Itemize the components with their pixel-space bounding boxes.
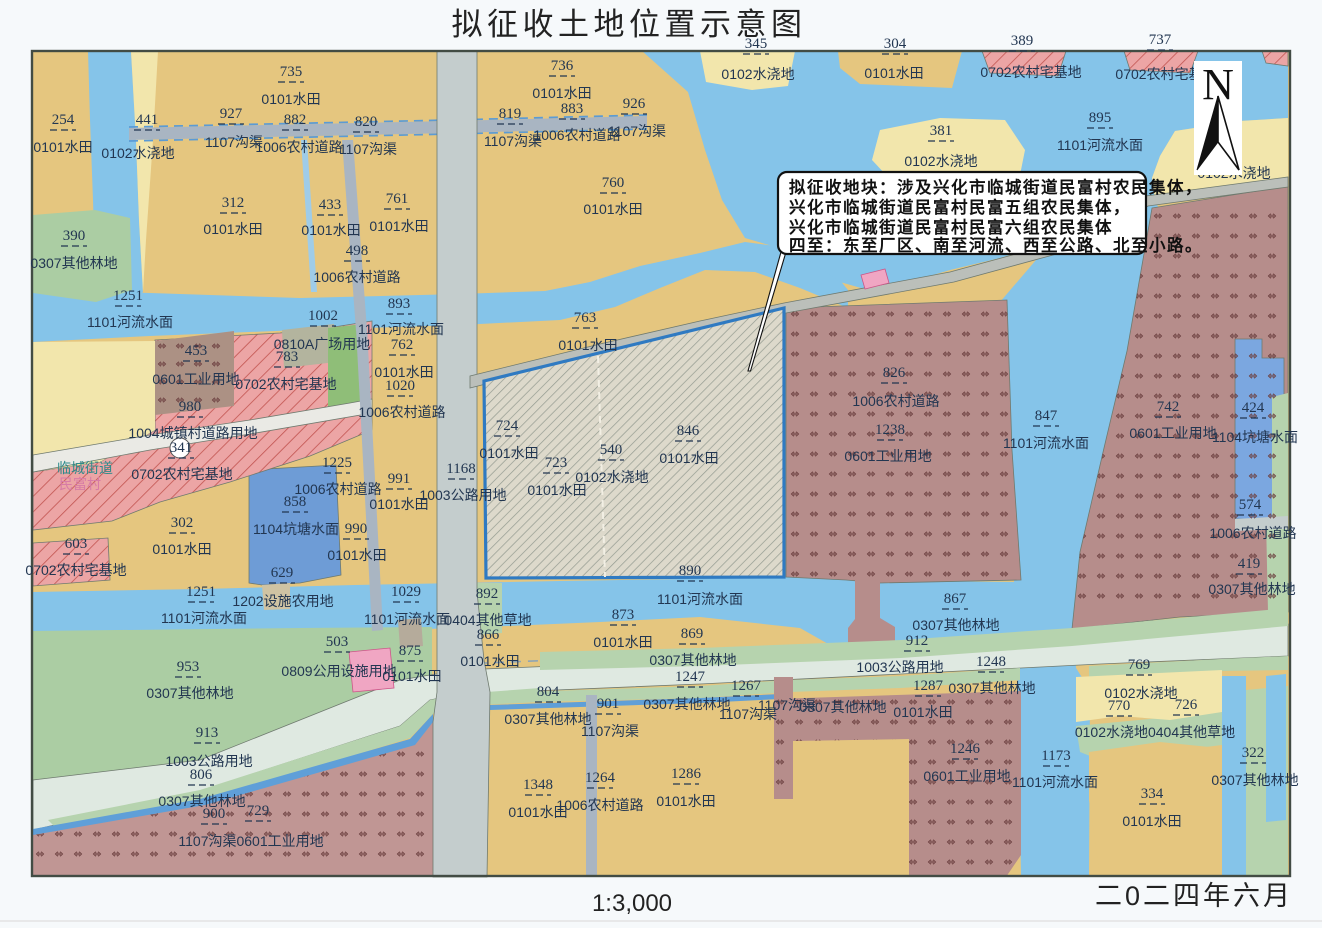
svg-text:0101水田: 0101水田 [261, 91, 320, 107]
svg-text:866: 866 [477, 627, 500, 643]
svg-text:0307其他林地: 0307其他林地 [649, 652, 736, 668]
svg-text:1101河流水面: 1101河流水面 [1003, 435, 1089, 451]
svg-text:1101河流水面: 1101河流水面 [1012, 774, 1098, 790]
svg-text:1107沟渠: 1107沟渠 [608, 123, 666, 139]
svg-text:0101水田: 0101水田 [460, 653, 519, 669]
svg-text:0102水浇地: 0102水浇地 [721, 66, 794, 82]
svg-text:1006农村道路: 1006农村道路 [358, 404, 445, 420]
svg-text:723: 723 [545, 455, 568, 471]
svg-text:0702农村宅基地: 0702农村宅基地 [235, 376, 336, 392]
svg-text:254: 254 [52, 112, 75, 128]
svg-text:1107沟渠: 1107沟渠 [339, 141, 397, 157]
svg-text:302: 302 [171, 515, 194, 531]
svg-text:820: 820 [355, 114, 378, 130]
svg-text:0307其他林地: 0307其他林地 [146, 685, 233, 701]
svg-text:0601工业用地: 0601工业用地 [1129, 425, 1216, 441]
svg-text:0809公用设施用地: 0809公用设施用地 [281, 663, 396, 679]
svg-text:1104坑塘水面: 1104坑塘水面 [253, 521, 339, 537]
svg-text:0307其他林地: 0307其他林地 [799, 699, 886, 715]
svg-text:873: 873 [612, 607, 635, 623]
svg-text:901: 901 [597, 696, 620, 712]
svg-text:895: 895 [1089, 110, 1112, 126]
svg-text:0101水田: 0101水田 [893, 704, 952, 720]
svg-text:0601工业用地: 0601工业用地 [844, 448, 931, 464]
svg-text:1104坑塘水面: 1104坑塘水面 [1212, 429, 1298, 445]
svg-text:1006农村道路: 1006农村道路 [294, 481, 381, 497]
svg-text:890: 890 [679, 563, 702, 579]
svg-text:0601工业用地: 0601工业用地 [923, 768, 1010, 784]
svg-text:民富村: 民富村 [59, 476, 101, 492]
svg-text:1348: 1348 [523, 777, 553, 793]
svg-text:兴化市临城街道民富村民富五组农民集体，: 兴化市临城街道民富村民富五组农民集体， [789, 197, 1131, 217]
svg-text:381: 381 [930, 123, 953, 139]
svg-text:0307其他林地: 0307其他林地 [1211, 772, 1298, 788]
svg-text:1101河流水面: 1101河流水面 [1057, 137, 1143, 153]
svg-text:869: 869 [681, 626, 704, 642]
svg-text:763: 763 [574, 310, 597, 326]
svg-text:0101水田: 0101水田 [558, 337, 617, 353]
svg-text:912: 912 [906, 633, 929, 649]
svg-text:1248: 1248 [976, 654, 1006, 670]
svg-text:0101水田: 0101水田 [532, 85, 591, 101]
svg-text:1006农村道路: 1006农村道路 [1209, 525, 1296, 541]
svg-text:991: 991 [388, 471, 411, 487]
svg-text:390: 390 [63, 228, 86, 244]
svg-text:0102水浇地: 0102水浇地 [904, 153, 977, 169]
svg-text:0101水田: 0101水田 [33, 139, 92, 155]
svg-text:1004城镇村道路用地: 1004城镇村道路用地 [128, 425, 257, 441]
svg-text:882: 882 [284, 112, 307, 128]
svg-text:1020: 1020 [385, 378, 415, 394]
svg-text:拟征收地块：涉及兴化市临城街道民富村农民集体，: 拟征收地块：涉及兴化市临城街道民富村农民集体， [789, 177, 1203, 197]
svg-text:424: 424 [1242, 400, 1265, 416]
svg-text:0307其他林地: 0307其他林地 [1208, 581, 1295, 597]
svg-text:304: 304 [884, 36, 907, 52]
svg-text:1267: 1267 [731, 678, 762, 694]
svg-text:0601工业用地: 0601工业用地 [152, 371, 239, 387]
svg-text:四至：东至厂区、南至河流、西至公路、北至小路。: 四至：东至厂区、南至河流、西至公路、北至小路。 [789, 235, 1203, 255]
svg-text:322: 322 [1242, 745, 1265, 761]
svg-text:0101水田: 0101水田 [369, 218, 428, 234]
svg-text:334: 334 [1141, 786, 1164, 802]
svg-text:729: 729 [247, 803, 270, 819]
svg-text:0101水田: 0101水田 [152, 541, 211, 557]
svg-text:1202设施农用地: 1202设施农用地 [232, 593, 333, 609]
svg-text:0101水田: 0101水田 [656, 793, 715, 809]
svg-text:二0二四年六月: 二0二四年六月 [1095, 881, 1293, 911]
svg-text:1264: 1264 [585, 770, 616, 786]
svg-text:1107沟渠: 1107沟渠 [581, 723, 639, 739]
svg-text:893: 893 [388, 296, 411, 312]
svg-text:0307其他林地: 0307其他林地 [912, 617, 999, 633]
svg-text:1101河流水面: 1101河流水面 [161, 610, 247, 626]
svg-text:1003公路用地: 1003公路用地 [419, 487, 506, 503]
svg-text:1101河流水面: 1101河流水面 [358, 321, 444, 337]
svg-text:0307其他林地: 0307其他林地 [504, 711, 591, 727]
svg-text:389: 389 [1011, 33, 1034, 49]
svg-text:1246: 1246 [950, 741, 981, 757]
svg-text:846: 846 [677, 423, 700, 439]
svg-text:1168: 1168 [446, 461, 475, 477]
svg-text:736: 736 [551, 58, 574, 74]
svg-text:0101水田: 0101水田 [479, 445, 538, 461]
svg-text:760: 760 [602, 175, 625, 191]
svg-text:742: 742 [1157, 399, 1180, 415]
svg-text:875: 875 [399, 643, 422, 659]
svg-text:兴化市临城街道民富村民富六组农民集体: 兴化市临城街道民富村民富六组农民集体 [789, 217, 1113, 237]
svg-text:0101水田: 0101水田 [1122, 813, 1181, 829]
svg-text:498: 498 [346, 243, 369, 259]
svg-text:0702农村宅基: 0702农村宅基 [1115, 66, 1202, 82]
svg-text:770: 770 [1108, 698, 1131, 714]
svg-text:419: 419 [1238, 556, 1261, 572]
svg-text:761: 761 [386, 191, 409, 207]
svg-text:726: 726 [1175, 697, 1198, 713]
svg-text:1006农村道路: 1006农村道路 [313, 269, 400, 285]
svg-text:1287: 1287 [913, 678, 944, 694]
svg-text:0307其他林地: 0307其他林地 [30, 255, 117, 271]
svg-text:0702农村宅基地: 0702农村宅基地 [131, 466, 232, 482]
svg-text:503: 503 [326, 634, 349, 650]
svg-text:0101水田: 0101水田 [864, 65, 923, 81]
svg-text:1101河流水面: 1101河流水面 [364, 611, 450, 627]
svg-text:1238: 1238 [875, 422, 905, 438]
svg-text:1251: 1251 [186, 584, 216, 600]
svg-text:1003公路用地: 1003公路用地 [856, 659, 943, 675]
svg-text:341: 341 [170, 440, 193, 456]
svg-text:0102水浇地: 0102水浇地 [575, 469, 648, 485]
svg-text:441: 441 [136, 112, 159, 128]
svg-text:拟征收土地位置示意图: 拟征收土地位置示意图 [452, 7, 807, 42]
svg-text:804: 804 [537, 684, 560, 700]
svg-text:0307其他林地: 0307其他林地 [948, 680, 1035, 696]
svg-text:769: 769 [1128, 657, 1151, 673]
svg-text:1002: 1002 [308, 308, 338, 324]
svg-text:883: 883 [561, 101, 584, 117]
svg-text:0102水浇地: 0102水浇地 [101, 145, 174, 161]
svg-text:892: 892 [476, 586, 499, 602]
svg-text:0101水田: 0101水田 [382, 668, 441, 684]
svg-text:1006农村道路: 1006农村道路 [556, 797, 643, 813]
svg-text:926: 926 [623, 96, 646, 112]
svg-text:900: 900 [203, 806, 226, 822]
svg-text:1247: 1247 [675, 669, 706, 685]
svg-text:0404其他草地: 0404其他草地 [444, 612, 531, 628]
svg-text:927: 927 [220, 106, 243, 122]
svg-text:1:3,000: 1:3,000 [592, 890, 672, 917]
svg-text:0810A广场用地: 0810A广场用地 [274, 336, 370, 352]
svg-text:1286: 1286 [671, 766, 702, 782]
svg-text:1101河流水面: 1101河流水面 [87, 314, 173, 330]
svg-text:1173: 1173 [1041, 748, 1070, 764]
svg-text:453: 453 [185, 343, 208, 359]
svg-text:0702农村宅基地: 0702农村宅基地 [980, 64, 1081, 80]
svg-text:603: 603 [65, 536, 88, 552]
svg-text:1107沟渠0601工业用地: 1107沟渠0601工业用地 [178, 833, 323, 849]
svg-text:540: 540 [600, 442, 623, 458]
svg-text:1101河流水面: 1101河流水面 [657, 591, 743, 607]
svg-text:819: 819 [499, 106, 522, 122]
svg-text:953: 953 [177, 659, 200, 675]
svg-text:0102水浇地0404其他草地: 0102水浇地0404其他草地 [1075, 724, 1235, 740]
svg-text:0307其他林地: 0307其他林地 [643, 696, 730, 712]
svg-text:1251: 1251 [113, 288, 143, 304]
svg-text:980: 980 [179, 399, 202, 415]
svg-text:0101水田: 0101水田 [301, 222, 360, 238]
svg-text:826: 826 [883, 365, 906, 381]
svg-text:0101水田: 0101水田 [583, 201, 642, 217]
svg-text:1107沟渠: 1107沟渠 [205, 134, 263, 150]
svg-text:312: 312 [222, 195, 245, 211]
svg-text:574: 574 [1239, 497, 1262, 513]
svg-text:724: 724 [496, 418, 519, 434]
svg-text:737: 737 [1149, 32, 1172, 48]
svg-text:913: 913 [196, 725, 219, 741]
svg-text:0101水田: 0101水田 [327, 547, 386, 563]
svg-text:0702农村宅基地: 0702农村宅基地 [25, 562, 126, 578]
svg-text:0101水田: 0101水田 [203, 221, 262, 237]
svg-text:1225: 1225 [322, 455, 352, 471]
svg-text:1006农村道路: 1006农村道路 [255, 139, 342, 155]
svg-text:762: 762 [391, 337, 414, 353]
svg-text:806: 806 [190, 767, 213, 783]
svg-text:847: 847 [1035, 408, 1058, 424]
svg-text:1006农村道路: 1006农村道路 [852, 393, 939, 409]
svg-text:735: 735 [280, 64, 303, 80]
svg-text:0101水田: 0101水田 [659, 450, 718, 466]
svg-text:629: 629 [271, 565, 294, 581]
svg-text:1029: 1029 [391, 584, 421, 600]
svg-text:433: 433 [319, 197, 342, 213]
svg-text:临城街道: 临城街道 [57, 460, 113, 476]
svg-text:867: 867 [944, 591, 967, 607]
svg-text:990: 990 [345, 521, 368, 537]
svg-text:0101水田: 0101水田 [593, 634, 652, 650]
